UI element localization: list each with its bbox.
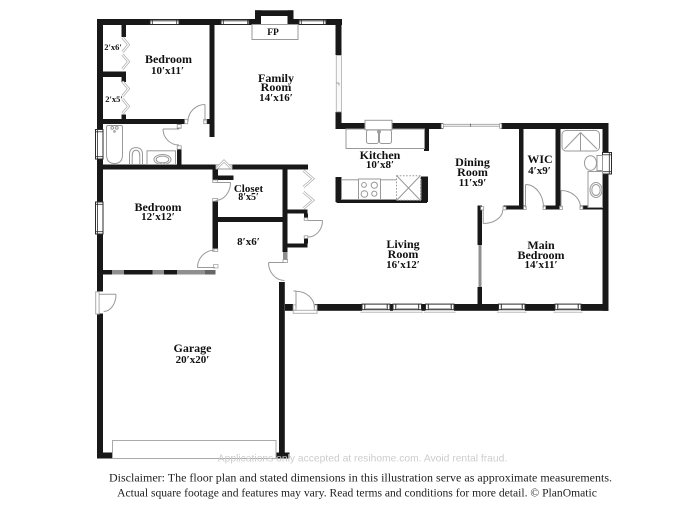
svg-text:20′x20′: 20′x20′ [176,354,210,366]
svg-text:Garage: Garage [174,341,213,355]
svg-text:FP: FP [267,28,279,38]
svg-text:2′x6′: 2′x6′ [104,42,122,52]
svg-text:10′x11′: 10′x11′ [151,65,184,77]
svg-text:14′x16′: 14′x16′ [259,92,293,104]
svg-text:Bedroom: Bedroom [145,52,192,66]
svg-text:WIC: WIC [527,152,552,166]
svg-text:11′x9′: 11′x9′ [459,177,487,189]
svg-text:8′x6′: 8′x6′ [237,236,260,248]
svg-text:10′x8′: 10′x8′ [366,159,394,171]
svg-text:16′x12′: 16′x12′ [386,259,420,271]
svg-text:12′x12′: 12′x12′ [141,211,175,223]
svg-text:Applications only accepted at: Applications only accepted at resihome.c… [218,454,507,465]
svg-text:14′x11′: 14′x11′ [524,259,557,271]
svg-text:2′x5′: 2′x5′ [105,94,123,104]
svg-text:Actual square footage and feat: Actual square footage and features may v… [117,487,597,500]
svg-text:Disclaimer: The floor plan and: Disclaimer: The floor plan and stated di… [109,471,612,485]
svg-text:4′x9′: 4′x9′ [528,165,551,177]
svg-text:8′x5′: 8′x5′ [238,192,259,203]
